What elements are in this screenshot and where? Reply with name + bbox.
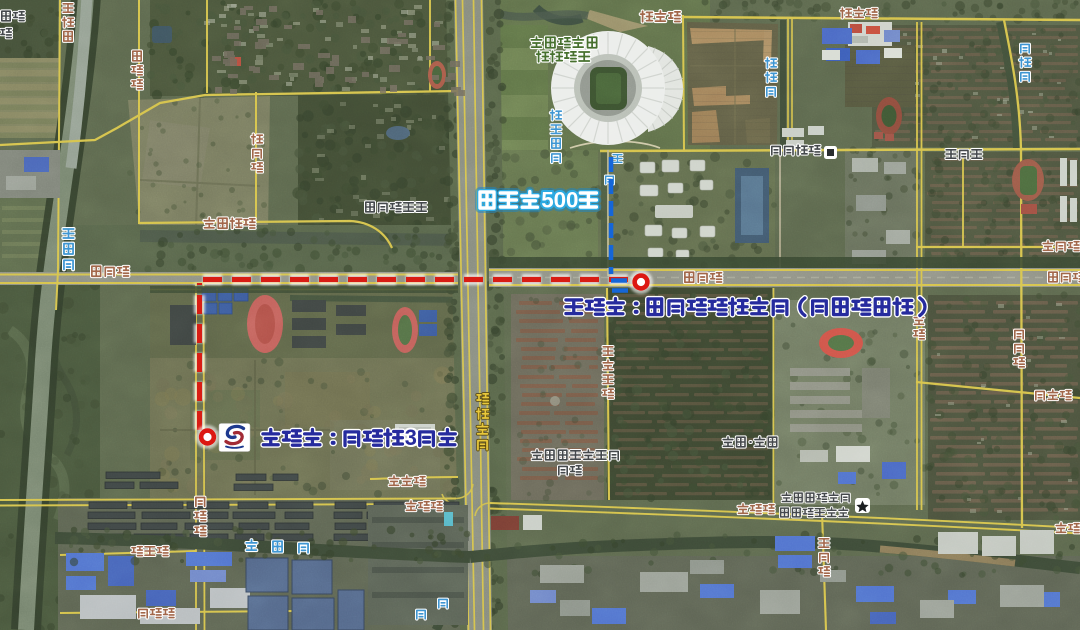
svg-text:0: 0 (566, 188, 578, 213)
svg-text:3: 3 (405, 425, 417, 450)
svg-text:5: 5 (541, 188, 553, 213)
svg-text:0: 0 (554, 188, 566, 213)
